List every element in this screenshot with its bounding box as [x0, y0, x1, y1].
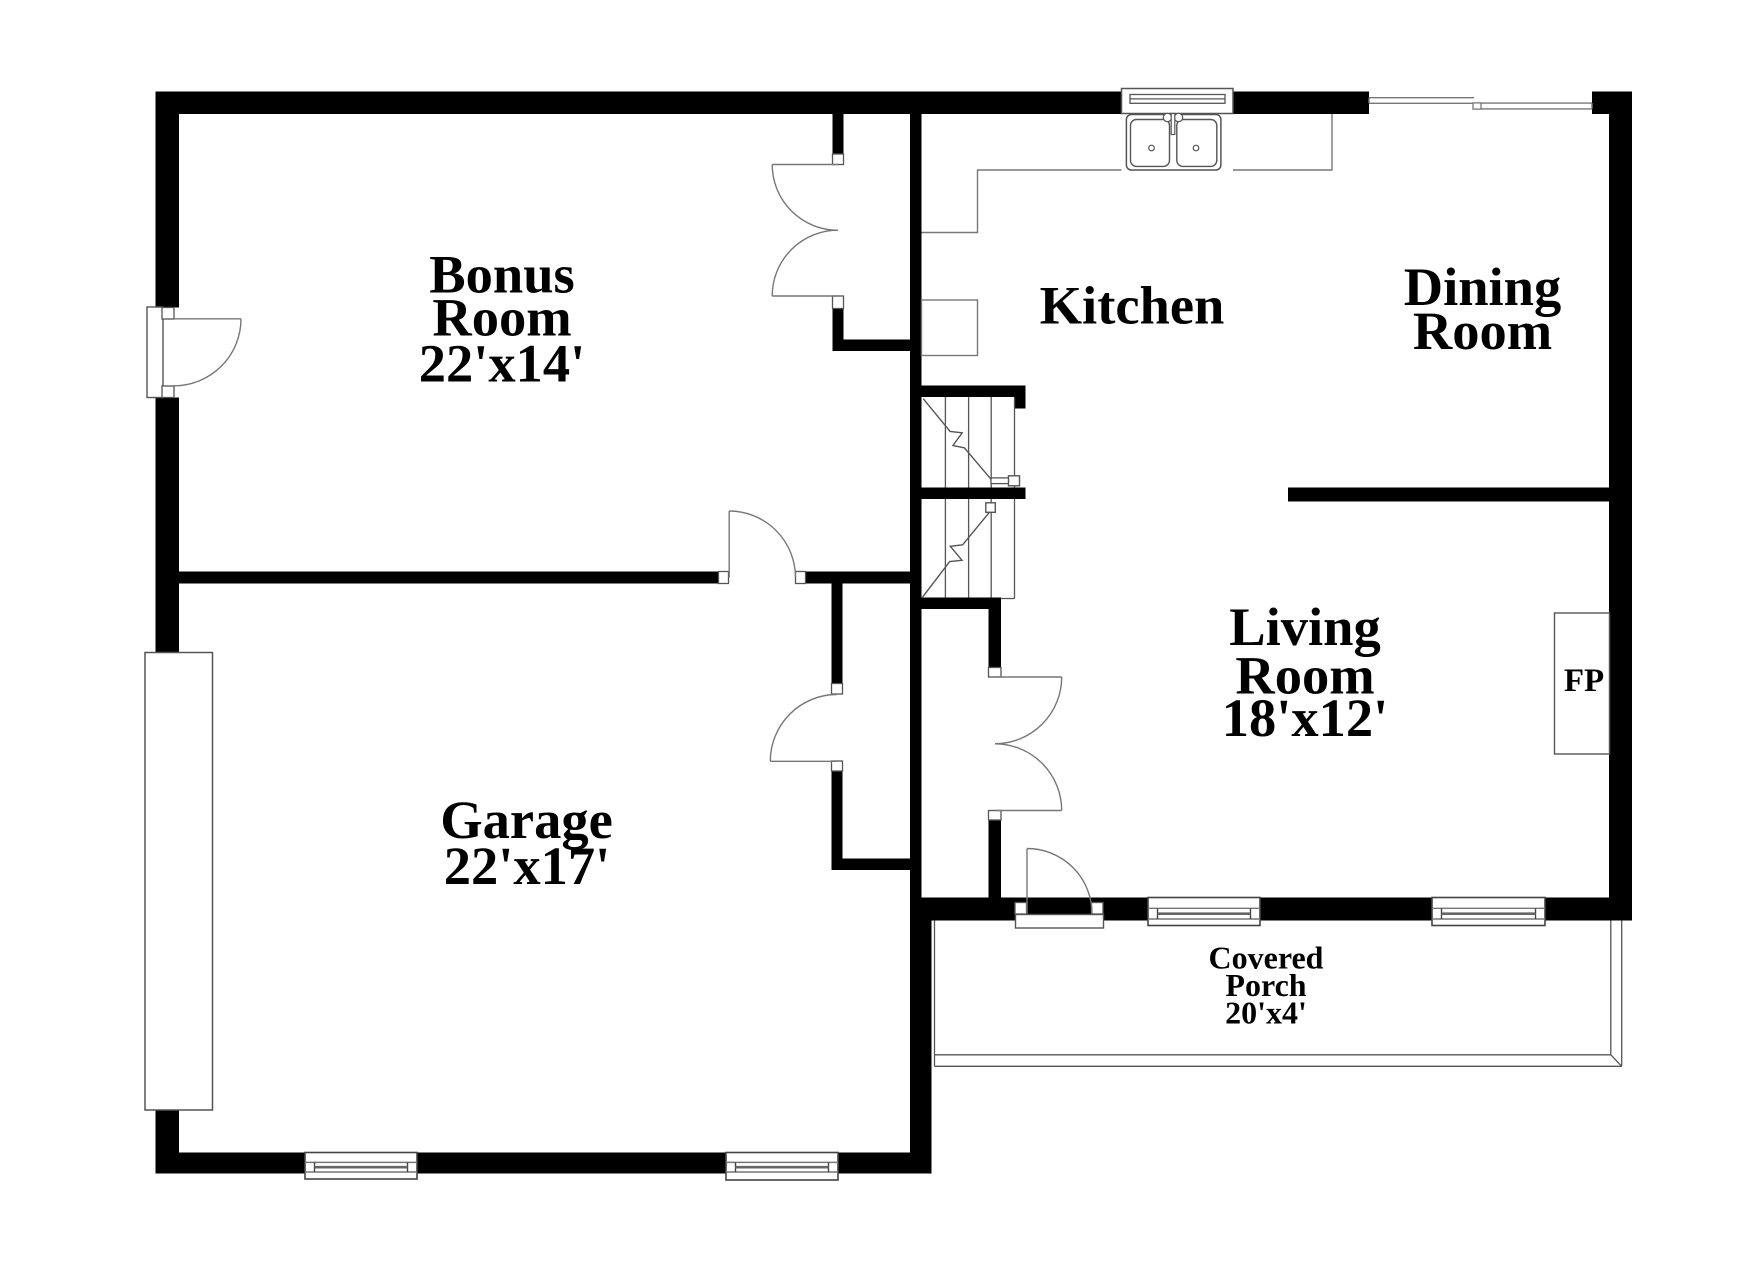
svg-text:22'x17': 22'x17'	[444, 835, 611, 896]
svg-text:Kitchen: Kitchen	[1040, 275, 1225, 336]
svg-text:Room: Room	[1413, 300, 1552, 361]
svg-text:18'x12': 18'x12'	[1222, 687, 1389, 748]
svg-text:20'x4': 20'x4'	[1225, 995, 1307, 1031]
svg-text:FP: FP	[1564, 663, 1604, 699]
svg-text:22'x14': 22'x14'	[419, 333, 586, 394]
